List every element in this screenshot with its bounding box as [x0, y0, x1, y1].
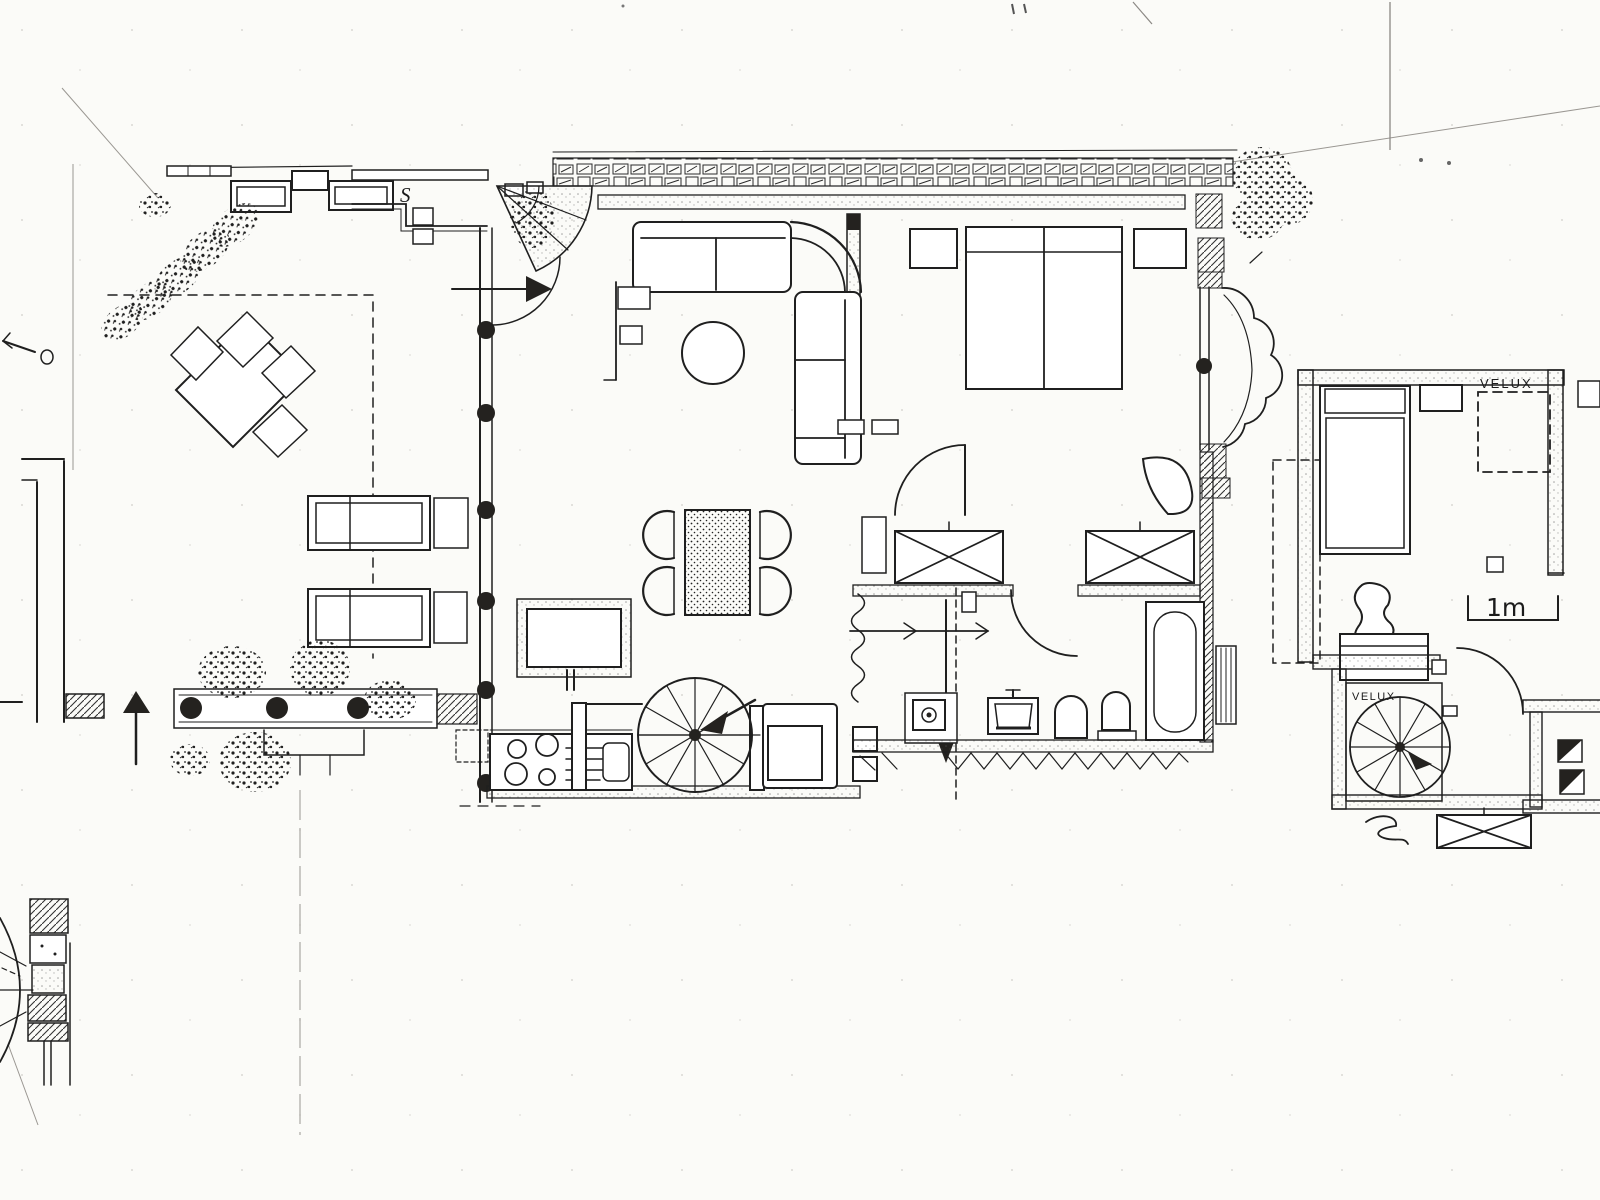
nightstand — [1134, 229, 1186, 268]
kitchen-counter — [490, 730, 632, 790]
bath-top-wall — [1078, 585, 1200, 596]
masonry-pillar — [28, 899, 68, 1041]
window-post — [1196, 358, 1212, 374]
sideboard — [517, 599, 631, 690]
wall-fragment — [1578, 381, 1600, 407]
north-house-wall — [598, 195, 1185, 209]
stair-side-cabinet — [763, 704, 837, 788]
facade-post — [477, 404, 495, 422]
facade-post — [477, 592, 495, 610]
wardrobe — [1086, 522, 1194, 583]
wall-pier — [66, 694, 104, 718]
plant — [290, 640, 350, 696]
attic-wardrobe — [1437, 808, 1531, 848]
toilet — [1055, 696, 1087, 738]
plant — [364, 680, 416, 720]
hatched-step — [437, 694, 477, 724]
skylight-hatch-square — [1558, 740, 1582, 762]
spiral-staircase-attic — [1350, 697, 1450, 797]
facade-post — [477, 321, 495, 339]
velux-label: VELUX — [1480, 376, 1533, 391]
skylight-hatch-square — [1560, 770, 1584, 794]
plant — [219, 732, 291, 792]
bathtub — [1146, 602, 1204, 740]
plant — [170, 744, 210, 776]
plant-pot — [180, 697, 202, 719]
hall-top-wall — [853, 585, 1013, 596]
facade-post — [477, 681, 495, 699]
coffee-table — [682, 322, 744, 384]
bidet — [1102, 692, 1130, 730]
stone-garden-wall — [553, 158, 1233, 186]
stairwell-bottom-wall — [1332, 795, 1542, 809]
floor-plan-scan: S — [0, 0, 1600, 1200]
stairwell-left-wall — [1332, 669, 1346, 809]
plant — [198, 646, 266, 698]
facade-post — [477, 501, 495, 519]
attic-nightstand — [1420, 385, 1462, 411]
nightstand — [910, 229, 957, 268]
lounger-side-table — [434, 592, 467, 643]
section-mark-label: S — [400, 183, 411, 207]
lounger-side-table — [434, 498, 468, 548]
double-bed — [966, 227, 1122, 389]
attic-mid-wall — [1313, 655, 1440, 669]
dining-table — [685, 510, 750, 615]
plant-pot — [266, 697, 288, 719]
scale-label: 1m — [1486, 593, 1526, 622]
kitchen-sink — [603, 743, 629, 781]
velux-stair-label: VELUX — [1352, 691, 1396, 703]
attic-left-wall — [1298, 370, 1313, 662]
bath-bottom-wall — [853, 740, 1213, 752]
bush — [139, 193, 171, 217]
radiator — [1216, 646, 1236, 724]
